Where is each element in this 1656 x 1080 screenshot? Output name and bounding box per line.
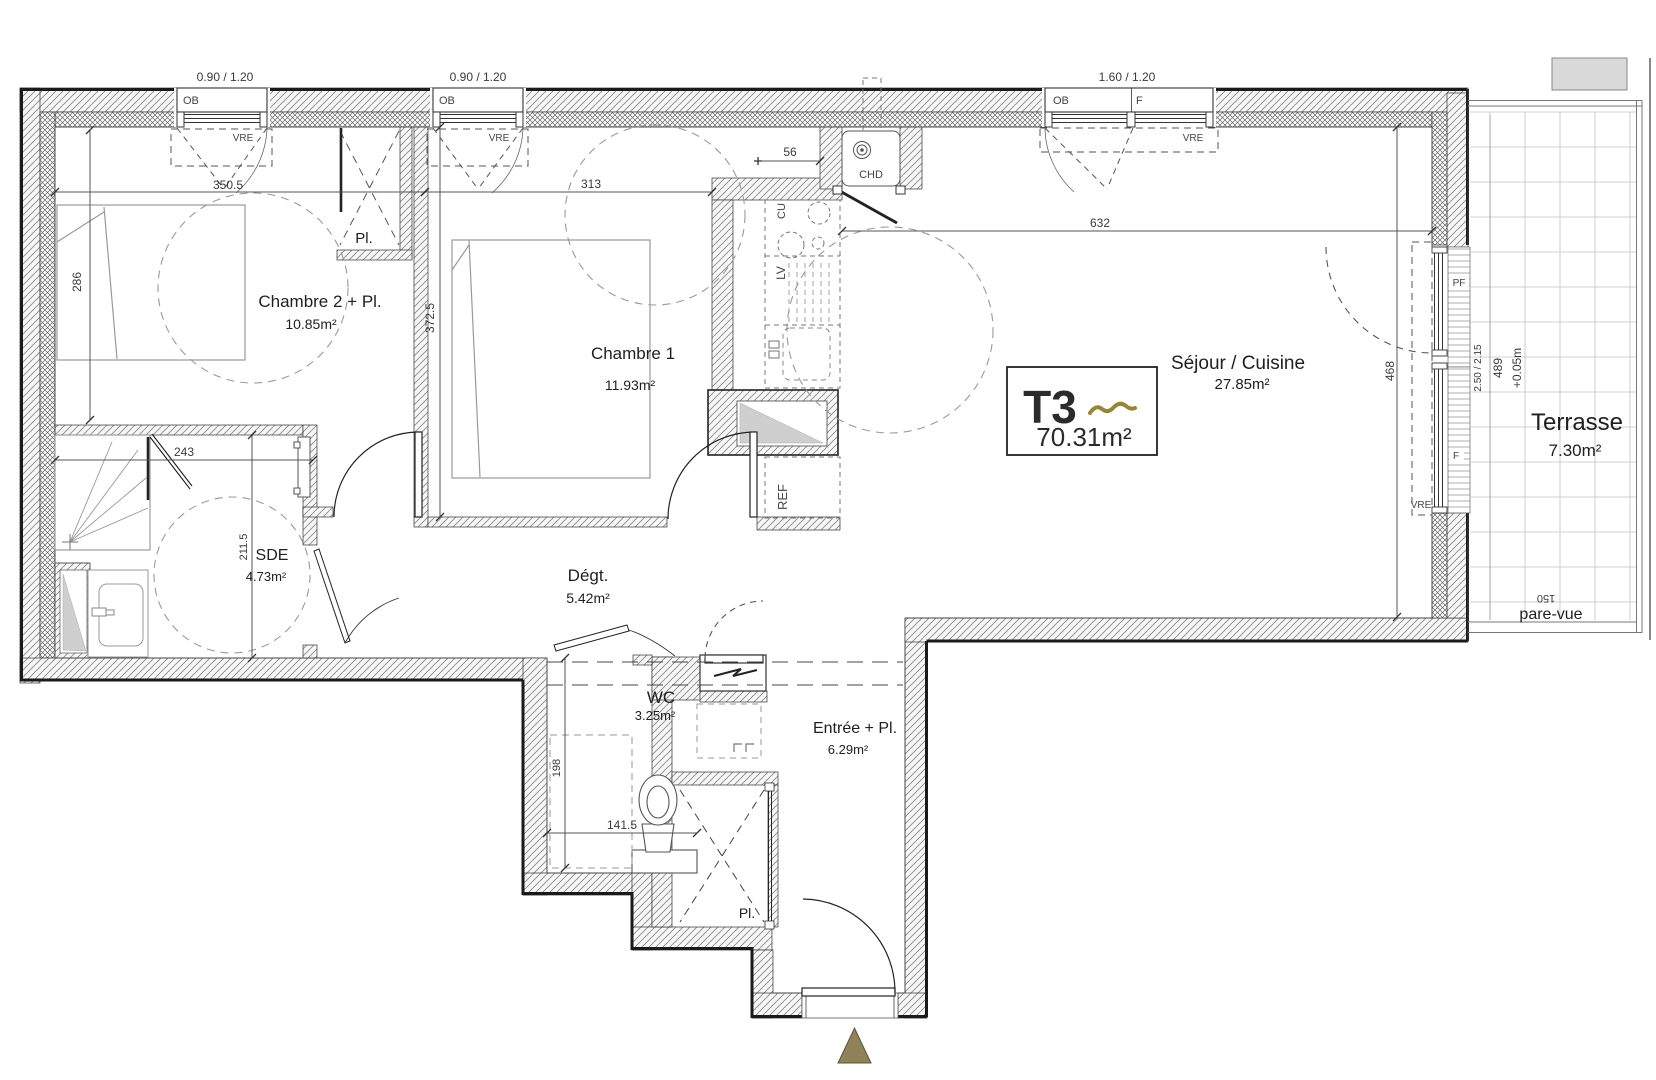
dim-489: 489 <box>1491 358 1505 378</box>
dim-141-5: 141.5 <box>607 818 637 832</box>
terrace <box>1468 58 1650 640</box>
dim-243: 243 <box>174 445 194 459</box>
bay-lower-label: F <box>1453 451 1459 462</box>
window-type-w3-left: OB <box>1053 95 1069 107</box>
parevue-height: 150 <box>1537 592 1555 604</box>
room-label-entree: Entrée + Pl. <box>813 720 897 737</box>
technical-shaft-kitchen <box>708 390 838 455</box>
closet-chambre2 <box>340 128 399 245</box>
shutter-w3: VRE <box>1183 133 1204 144</box>
room-label-degagement: Dégt. <box>568 566 609 585</box>
radiator-sde <box>294 437 310 497</box>
equip-label-chd: CHD <box>859 169 883 181</box>
floor-plan-page: 0.90 / 1.20 0.90 / 1.20 1.60 / 1.20 OB O… <box>0 0 1656 1080</box>
floor-plan-drawing: 0.90 / 1.20 0.90 / 1.20 1.60 / 1.20 OB O… <box>0 0 1656 1080</box>
area-label-degagement: 5.42m² <box>566 590 610 606</box>
window-type-w2: OB <box>439 95 455 107</box>
dim-bay-size: 2.50 / 2.15 <box>1473 344 1484 392</box>
shutter-w2: VRE <box>489 133 510 144</box>
door-chambre2 <box>415 432 422 517</box>
room-label-chambre1: Chambre 1 <box>591 344 675 363</box>
shower <box>55 434 192 550</box>
terrace-divider-pillar <box>1552 58 1627 90</box>
closet-label-chambre2: Pl. <box>355 230 373 247</box>
parevue-label: pare-vue <box>1519 606 1582 623</box>
room-label-wc: WC <box>647 688 675 707</box>
dim-632: 632 <box>1090 216 1110 230</box>
toilet <box>632 775 697 873</box>
door-chambre1 <box>750 432 757 517</box>
equip-label-cu: CU <box>776 203 788 219</box>
unit-area-label: 70.31m² <box>1036 422 1132 452</box>
bay-window-east <box>1326 242 1470 515</box>
dimension-lines <box>51 115 1490 872</box>
room-label-chambre2: Chambre 2 + Pl. <box>258 292 381 311</box>
dim-350-5: 350.5 <box>213 178 243 192</box>
washbasin-sde <box>88 570 148 657</box>
technical-shaft-sde <box>55 563 90 658</box>
bed-chambre2 <box>57 205 245 360</box>
entrance-arrow-icon <box>838 1028 871 1063</box>
dim-468: 468 <box>1383 361 1397 381</box>
bay-upper-label: PF <box>1453 278 1466 289</box>
dim-211-5: 211.5 <box>238 534 250 561</box>
window-type-w3-right: F <box>1136 95 1143 107</box>
room-label-terrasse: Terrasse <box>1531 409 1623 436</box>
shutter-bay: VRE <box>1411 500 1432 511</box>
window-size-w1: 0.90 / 1.20 <box>197 70 254 84</box>
room-label-sde: SDE <box>256 547 289 564</box>
closet-label-entree: Pl. <box>739 905 755 921</box>
area-label-wc: 3.25m² <box>635 708 676 723</box>
entry-door <box>802 988 895 996</box>
entree-upper-cabinet <box>697 704 761 758</box>
area-label-chambre1: 11.93m² <box>605 377 656 393</box>
window-size-w2: 0.90 / 1.20 <box>450 70 507 84</box>
dim-313: 313 <box>581 177 601 191</box>
dim-372-5: 372.5 <box>423 303 437 333</box>
door-sde <box>314 549 350 643</box>
wall-inner-lines <box>55 89 1468 993</box>
dim-56: 56 <box>783 145 797 159</box>
dim-198: 198 <box>551 759 563 777</box>
area-label-sejour: 27.85m² <box>1214 376 1269 393</box>
area-label-entree: 6.29m² <box>828 742 869 757</box>
room-label-sejour: Séjour / Cuisine <box>1171 353 1305 374</box>
terrace-level: +0.05m <box>1510 348 1524 388</box>
area-label-sde: 4.73m² <box>246 569 287 584</box>
door-wc <box>554 625 629 651</box>
equip-label-lv: LV <box>774 266 788 280</box>
equip-label-ref: REF <box>775 484 790 510</box>
area-label-terrasse: 7.30m² <box>1549 441 1602 460</box>
window-size-w3: 1.60 / 1.20 <box>1099 70 1156 84</box>
wc-soffit-zone <box>550 735 632 868</box>
kitchen-counter <box>765 200 840 518</box>
area-label-chambre2: 10.85m² <box>285 316 337 332</box>
dishwasher-lines <box>789 263 829 322</box>
window-type-w1: OB <box>183 95 199 107</box>
dim-286: 286 <box>70 272 84 292</box>
shutter-w1: VRE <box>233 133 254 144</box>
